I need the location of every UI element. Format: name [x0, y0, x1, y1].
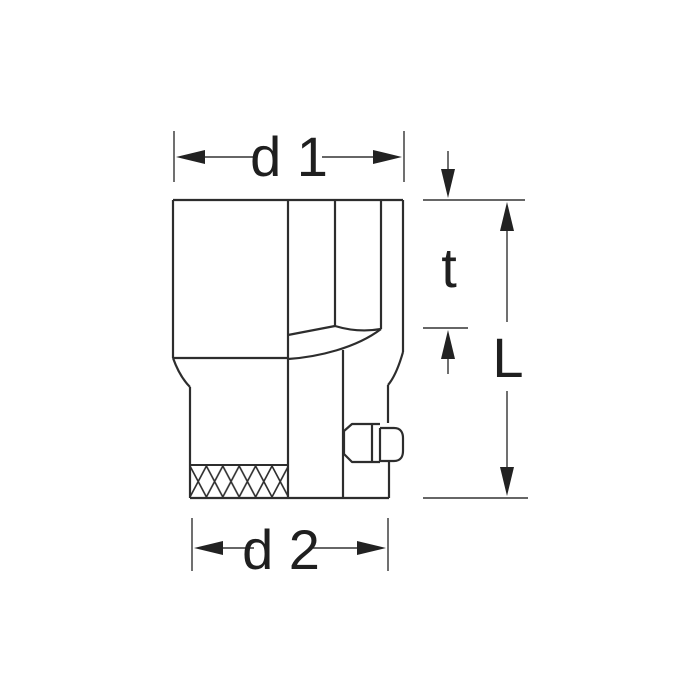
dimension-L: L [423, 202, 528, 498]
L-arrow-down-icon [500, 467, 514, 496]
recess-bottom-left-face [288, 326, 335, 335]
L-arrow-up-icon [500, 202, 514, 231]
socket-body [173, 200, 403, 498]
neck-sweep-curve [288, 329, 381, 359]
left-neck-fillet [173, 358, 190, 387]
socket-technical-drawing: d 1 t L d 2 [0, 0, 700, 700]
knurl-crosshatch [191, 466, 288, 497]
t-arrow-down-icon [441, 169, 455, 198]
detent-block [344, 424, 380, 462]
detent-knob [380, 428, 403, 461]
L-label: L [492, 326, 523, 389]
t-label: t [441, 236, 457, 299]
d2-label: d 2 [242, 518, 320, 581]
right-neck-fillet [388, 352, 403, 385]
d2-arrow-right-icon [357, 541, 386, 555]
knurled-band [190, 465, 288, 497]
d2-arrow-left-icon [194, 541, 223, 555]
recess-bottom-right-face [335, 326, 381, 330]
t-arrow-up-icon [441, 330, 455, 359]
d1-arrow-right-icon [373, 150, 402, 164]
dimension-d2: d 2 [192, 518, 388, 581]
detent-detail [344, 424, 403, 462]
d1-label: d 1 [250, 125, 328, 188]
d1-arrow-left-icon [176, 150, 205, 164]
drawing-canvas: d 1 t L d 2 [0, 0, 700, 700]
dimension-d1: d 1 [174, 125, 404, 188]
